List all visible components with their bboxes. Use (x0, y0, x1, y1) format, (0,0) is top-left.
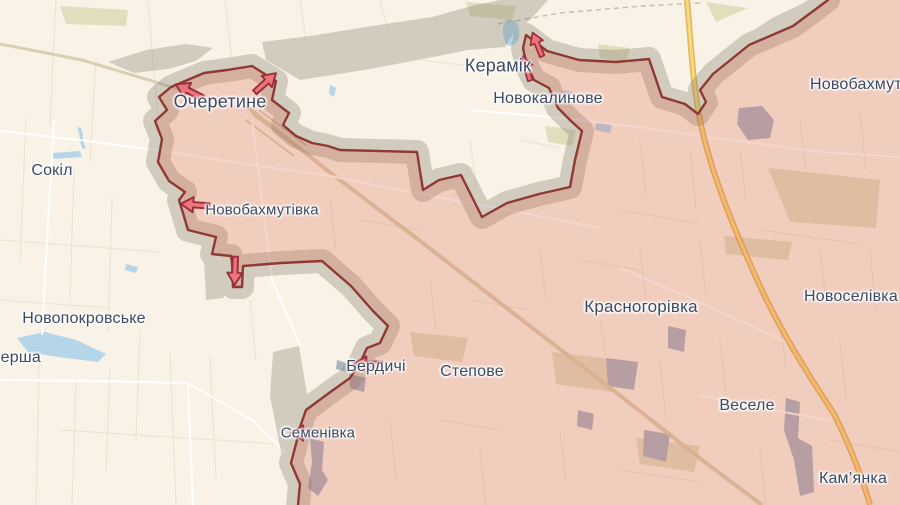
map-canvas (0, 0, 900, 505)
war-map[interactable]: ОчеретинеКерамікНовокалиновеНовобахмутів… (0, 0, 900, 505)
